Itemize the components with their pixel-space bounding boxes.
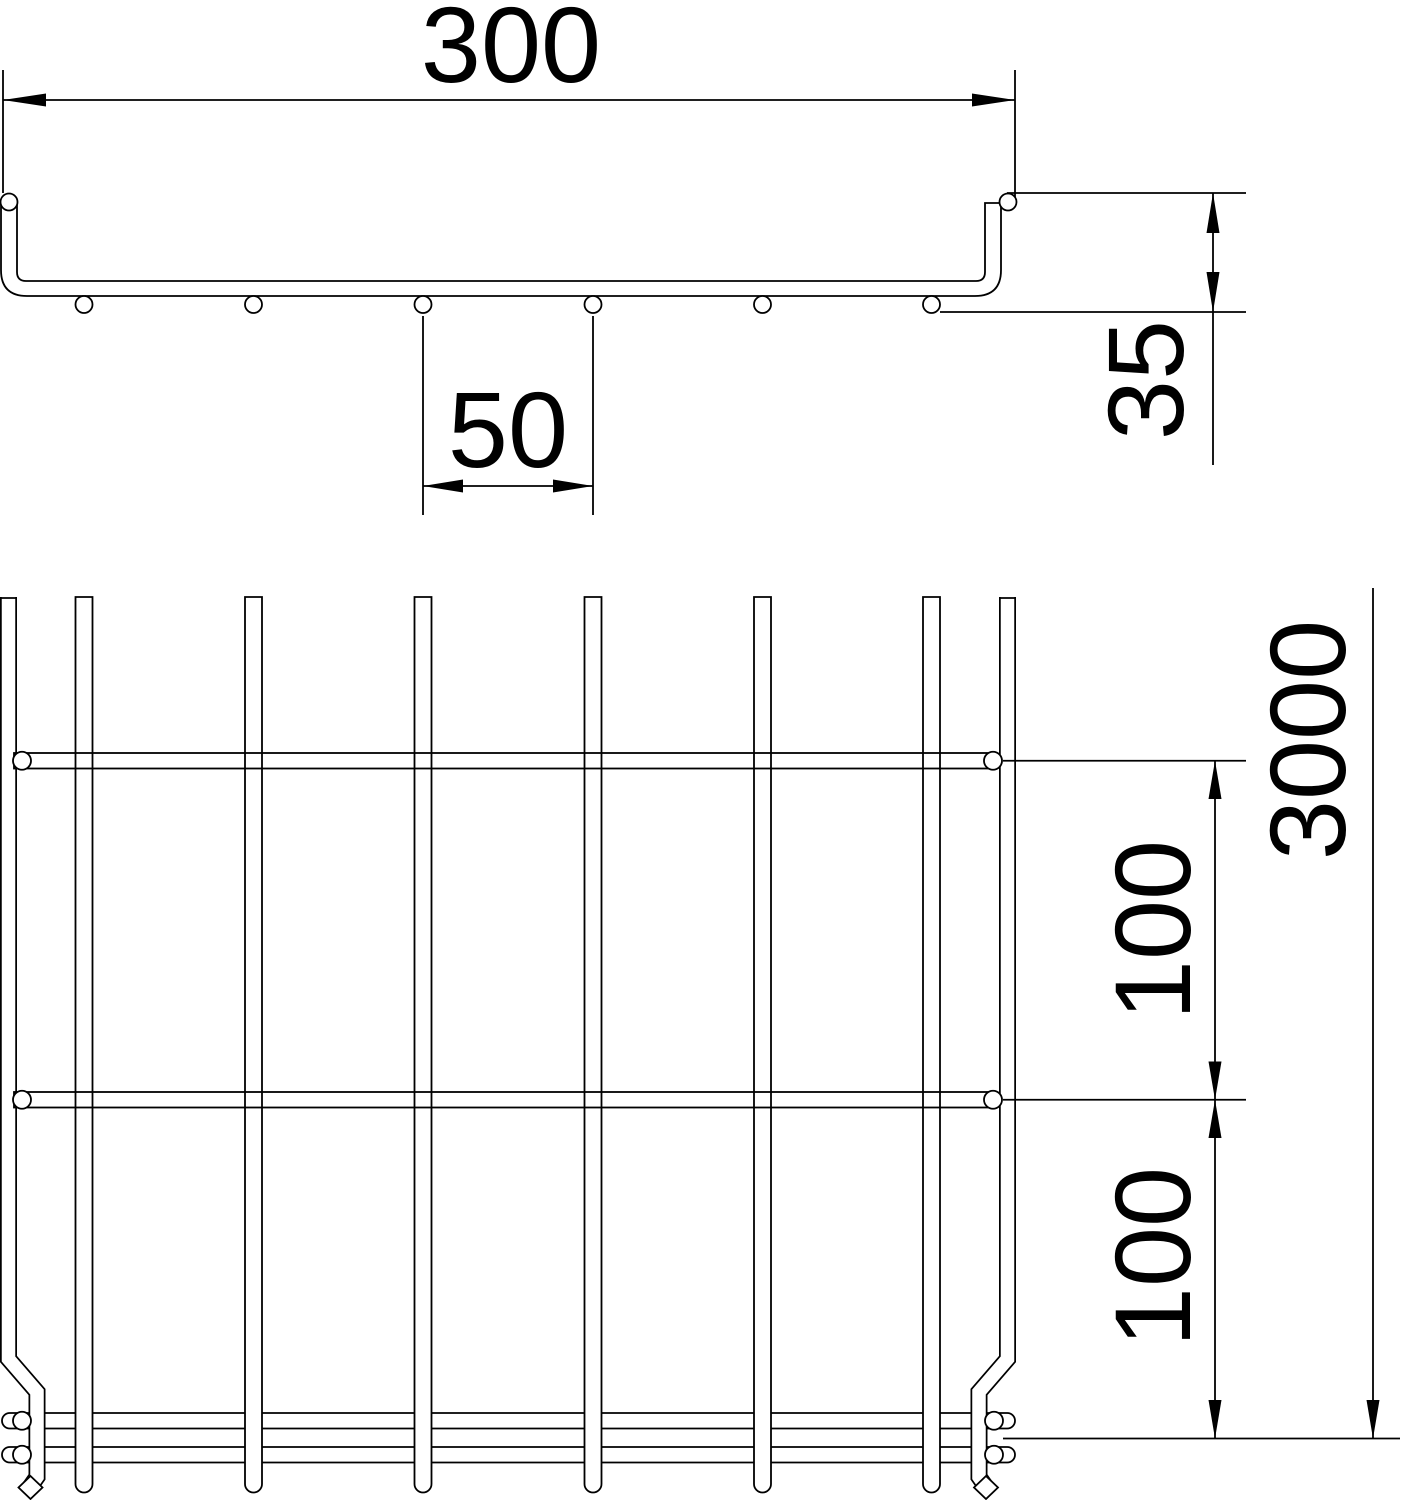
dimension-label-width: 300: [421, 0, 601, 105]
technical-drawing-page: 300 50 35: [0, 0, 1403, 1500]
rung-end-ball: [985, 1446, 1003, 1464]
cross-rung: [14, 753, 992, 769]
arrowhead-down: [1209, 1400, 1222, 1439]
bottom-wire-end: [415, 296, 432, 313]
dimension-rung-spacing-1: 100: [1003, 761, 1246, 1100]
dimension-label-height: 35: [1085, 320, 1206, 440]
dimension-length: 3000: [1247, 588, 1380, 1439]
arrowhead-down: [1209, 1062, 1222, 1100]
bottom-wire-end: [923, 296, 940, 313]
rung-end-ball: [13, 1446, 31, 1464]
dimension-label-wire-spacing: 50: [448, 369, 568, 490]
longitudinal-wire: [754, 597, 771, 1493]
longitudinal-wire: [923, 597, 940, 1493]
arrowhead-up: [1209, 1100, 1222, 1138]
bottom-wire-end: [754, 296, 771, 313]
longitudinal-wire: [415, 597, 432, 1493]
arrowhead-right: [972, 94, 1015, 107]
plan-view: [0, 597, 1016, 1499]
rung-end-ball: [984, 752, 1002, 770]
bottom-wire-end: [245, 296, 262, 313]
side-wire-right: [979, 597, 1008, 1487]
dimension-label-rung-spacing-1: 100: [1092, 840, 1213, 1020]
dimension-rung-spacing-2: 100: [1003, 1100, 1400, 1439]
cross-rung: [14, 1092, 992, 1108]
mesh-cable-tray-drawing: 300 50 35: [0, 0, 1403, 1500]
cross-section-view: [1, 194, 1017, 314]
rung-end-ball: [13, 752, 31, 770]
rung-end-ball: [985, 1412, 1003, 1430]
end-cross-wire: [2, 1413, 1015, 1429]
rung-end-ball: [13, 1091, 31, 1109]
side-wire-end-left: [1, 194, 18, 211]
arrowhead-up: [1209, 761, 1222, 799]
dimension-wire-spacing: 50: [423, 316, 593, 515]
bottom-wire-end: [585, 296, 602, 313]
side-wire-end-right: [1000, 194, 1017, 211]
tray-profile: [1, 203, 1001, 296]
rung-end-ball: [13, 1412, 31, 1430]
arrowhead-left: [3, 94, 46, 107]
longitudinal-wire: [76, 597, 93, 1493]
dimension-label-rung-spacing-2: 100: [1092, 1167, 1213, 1347]
arrowhead-down: [1207, 272, 1220, 312]
rung-end-ball: [984, 1091, 1002, 1109]
arrowhead-down: [1367, 1400, 1380, 1439]
longitudinal-wire: [245, 597, 262, 1493]
arrowhead-up: [1207, 193, 1220, 233]
bottom-wire-end: [76, 296, 93, 313]
end-cross-wire: [2, 1447, 1015, 1463]
dimension-width: 300: [3, 0, 1015, 197]
longitudinal-wire: [585, 597, 602, 1493]
side-wire-left: [9, 597, 38, 1487]
dimension-label-length: 3000: [1247, 620, 1368, 860]
